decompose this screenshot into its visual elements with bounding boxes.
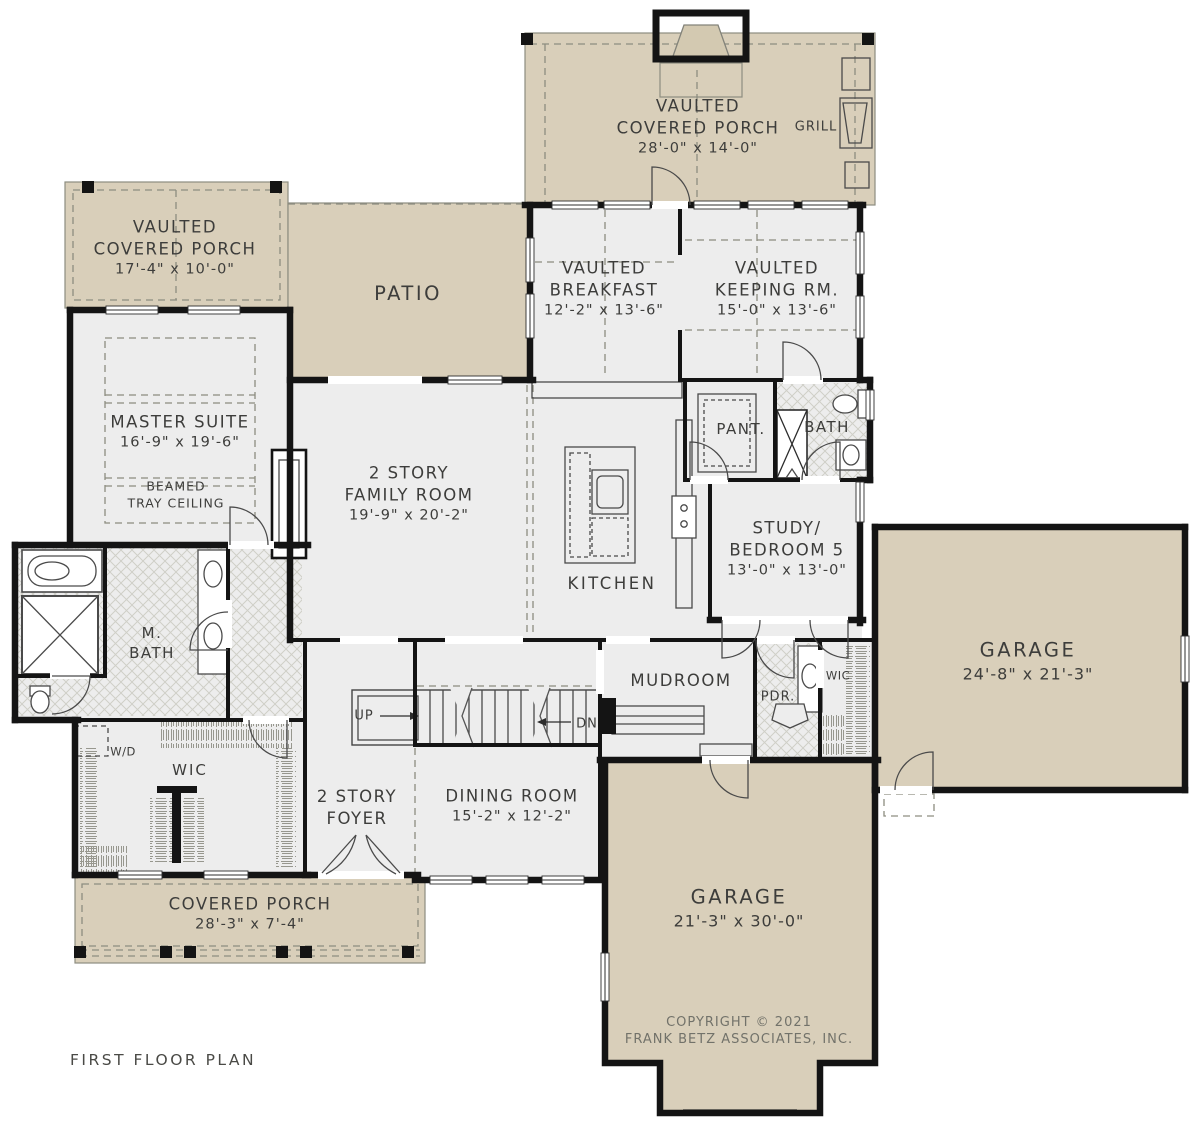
label-garage-side: GARAGE 24'-8" x 21'-3" xyxy=(963,638,1094,685)
label-powder-room: PDR. xyxy=(761,688,796,705)
floor-plan-drawing xyxy=(0,0,1200,1134)
label-wic-mudroom: WIC xyxy=(826,668,850,683)
label-foyer: 2 STORY FOYER xyxy=(317,786,397,830)
plan-title: FIRST FLOOR PLAN xyxy=(70,1050,256,1070)
label-dining-room: DINING ROOM 15'-2" x 12'-2" xyxy=(445,786,578,827)
label-covered-porch: COVERED PORCH 28'-3" x 7'-4" xyxy=(169,894,332,935)
label-garage-front: GARAGE 21'-3" x 30'-0" xyxy=(674,885,805,932)
label-breakfast: VAULTED BREAKFAST 12'-2" x 13'-6" xyxy=(544,258,664,321)
floor-plan-page: VAULTED COVERED PORCH 28'-0" x 14'-0" GR… xyxy=(0,0,1200,1134)
label-mudroom: MUDROOM xyxy=(630,670,731,692)
label-left-porch: VAULTED COVERED PORCH 17'-4" x 10'-0" xyxy=(94,217,257,280)
label-washer-dryer: W/D xyxy=(110,744,136,759)
label-kitchen: KITCHEN xyxy=(568,573,657,595)
label-patio: PATIO xyxy=(374,281,442,307)
label-stairs-down: DN xyxy=(576,715,598,732)
label-master-ceiling-note: BEAMED TRAY CEILING xyxy=(127,479,224,512)
label-master-suite: MASTER SUITE 16'-9" x 19'-6" xyxy=(110,412,249,453)
label-keeping-room: VAULTED KEEPING RM. 15'-0" x 13'-6" xyxy=(715,258,839,321)
label-wic-master: WIC xyxy=(172,761,208,781)
label-master-bath: M. BATH xyxy=(129,624,175,664)
label-top-porch: VAULTED COVERED PORCH 28'-0" x 14'-0" xyxy=(617,96,780,159)
copyright-notice: COPYRIGHT © 2021 FRANK BETZ ASSOCIATES, … xyxy=(625,1014,853,1048)
label-stairs-up: UP xyxy=(354,707,373,724)
label-bath: BATH xyxy=(804,418,850,438)
label-family-room: 2 STORY FAMILY ROOM 19'-9" x 20'-2" xyxy=(345,463,474,526)
label-grill: GRILL xyxy=(795,118,837,135)
label-pantry: PANT. xyxy=(716,420,765,440)
label-study-bedroom5: STUDY/ BEDROOM 5 13'-0" x 13'-0" xyxy=(727,518,847,581)
